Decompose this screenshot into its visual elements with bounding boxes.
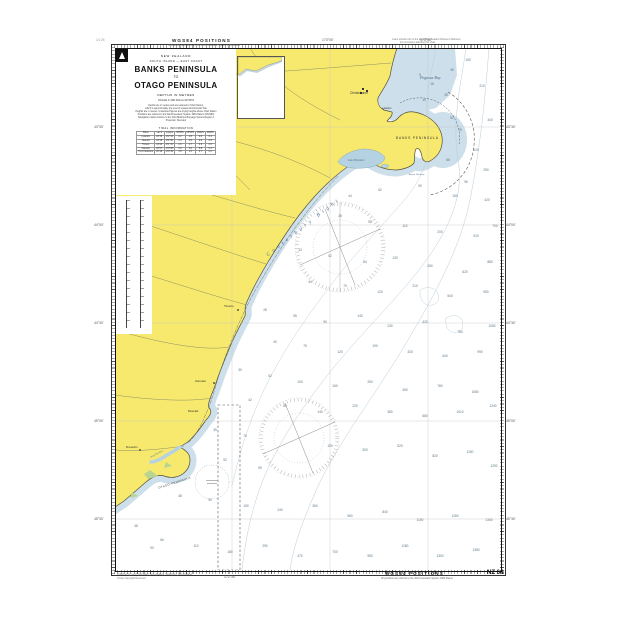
chart-title-connector: TO	[116, 75, 236, 79]
publisher-note: Published by Land Information New Zealan…	[117, 573, 192, 576]
title-region: SOUTH ISLAND — EAST COAST	[116, 59, 236, 63]
wgs84-note-top: All positions are referred to the World …	[168, 44, 240, 47]
wgs84-positions-bottom: WGS84 POSITIONS	[385, 571, 444, 576]
chart-number: NZ 64	[487, 570, 503, 576]
chart-title-line1: BANKS PENINSULA	[116, 65, 236, 74]
copyright-note: Crown Copyright Reserved	[117, 577, 146, 580]
tide-table: PlaceLat SLong EMHWSMHWNMLWNMLWS Lyttelt…	[136, 131, 215, 156]
nautical-chart-sheet: 14 26 WGS84 POSITIONS All positions are …	[0, 0, 617, 617]
index-inset-panel	[237, 56, 285, 119]
title-notes: Depths are in metres and are reduced to …	[116, 105, 236, 124]
depths-note: DEPTHS IN METRES	[116, 93, 236, 97]
adjoining-chart-note: 14 26	[96, 38, 105, 42]
tide-table-title: TIDAL INFORMATION	[120, 127, 232, 130]
wgs84-note-bottom: All positions are referred to the World …	[381, 577, 453, 580]
hydrographic-logo-icon	[116, 49, 128, 62]
title-note-line: Projection: Mercator	[120, 120, 232, 123]
wgs84-positions-top: WGS84 POSITIONS	[172, 38, 231, 43]
index-inset-map	[238, 57, 282, 83]
title-block: NEW ZEALAND SOUTH ISLAND — EAST COAST BA…	[116, 49, 236, 195]
tide-table-row: Port Chalmers45°49'170°39'1.81.50.70.3	[137, 151, 215, 155]
notices-note-line2: for corrections affecting this chart	[400, 41, 435, 44]
scale-bar	[126, 200, 130, 328]
scale-bar	[140, 200, 144, 328]
scale-note: SCALE 1:300 000 at 44°30'S	[116, 98, 236, 102]
latitude-scale-strip	[116, 196, 152, 334]
tide-table-wrap: TIDAL INFORMATION PlaceLat SLong EMHWSMH…	[120, 127, 232, 156]
title-country: NEW ZEALAND	[116, 54, 236, 58]
chart-title-line2: OTAGO PENINSULA	[116, 81, 236, 90]
